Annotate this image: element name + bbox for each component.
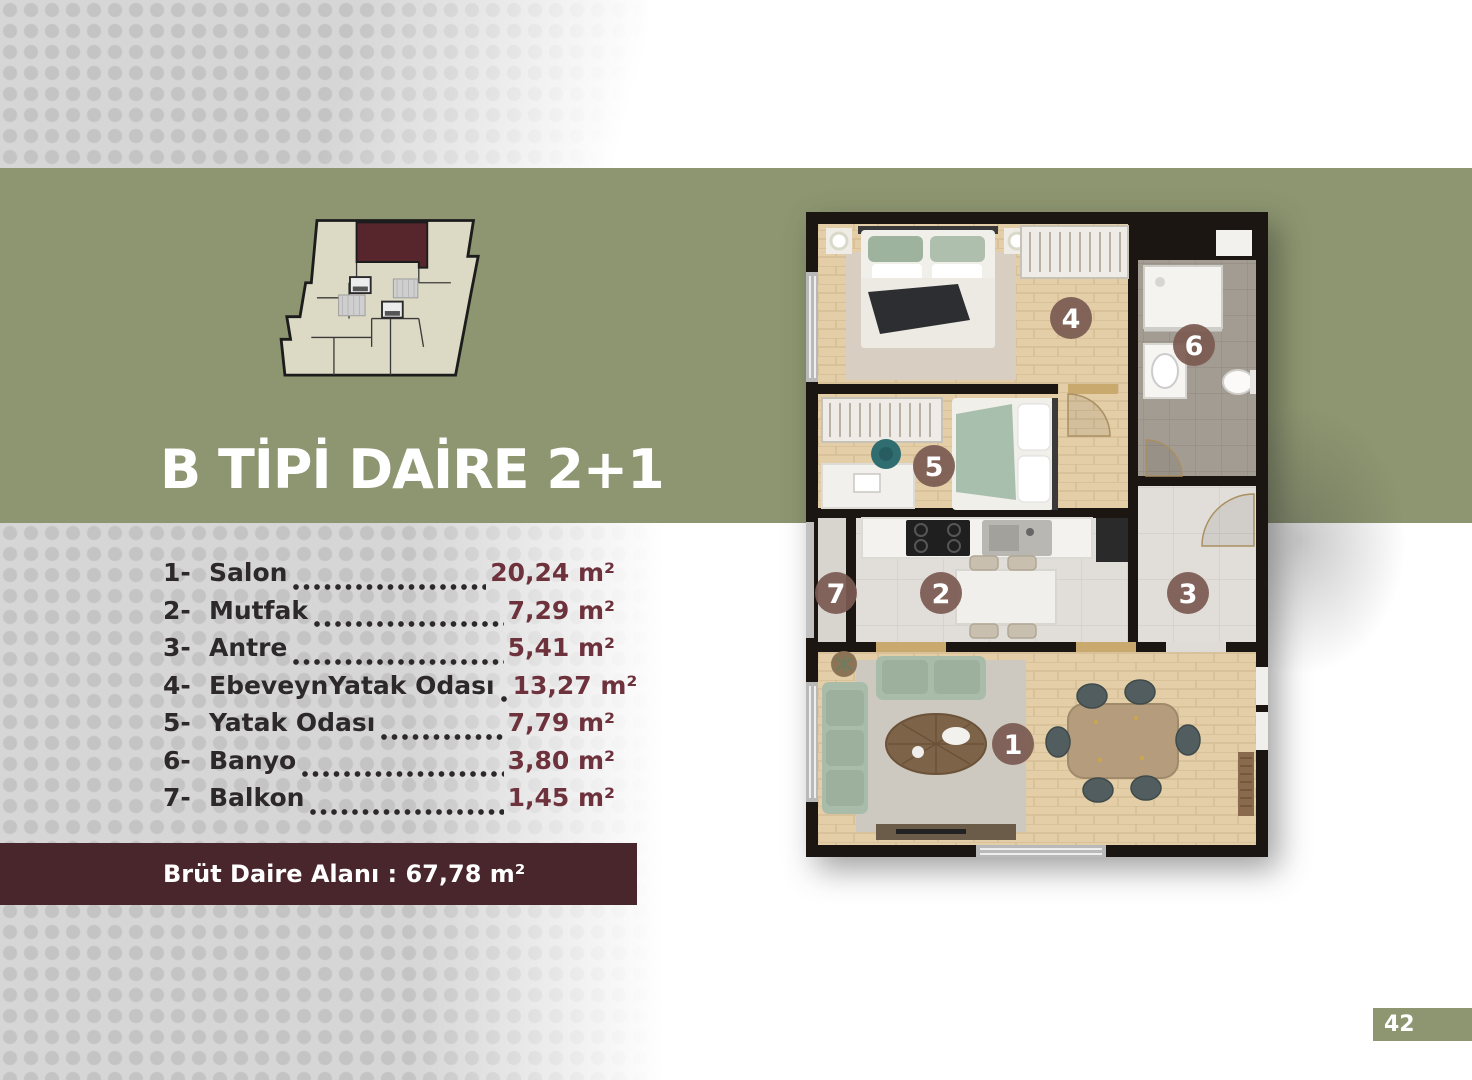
dot-leader	[308, 807, 503, 817]
dot-leader	[379, 732, 503, 742]
list-item: 1- Salon 20,24 m²	[163, 558, 615, 596]
svg-text:6: 6	[1185, 331, 1204, 362]
dot-leader	[291, 582, 486, 592]
list-item: 7- Balkon 1,45 m²	[163, 783, 615, 821]
svg-text:4: 4	[1062, 304, 1081, 335]
dot-leader	[300, 769, 503, 779]
room-name: Yatak Odası	[209, 708, 375, 737]
list-item: 3- Antre 5,41 m²	[163, 633, 615, 671]
svg-text:1: 1	[1004, 730, 1023, 761]
gross-area-banner: Brüt Daire Alanı : 67,78 m²	[0, 843, 637, 905]
room-marker-4: 4	[1050, 297, 1092, 339]
room-marker-7: 7	[815, 572, 857, 614]
room-area: 3,80 m²	[508, 746, 615, 775]
room-marker-6: 6	[1173, 324, 1215, 366]
bathroom-niche	[1216, 230, 1252, 256]
room-name: Mutfak	[209, 596, 308, 625]
room-marker-2: 2	[920, 572, 962, 614]
room-marker-5: 5	[913, 445, 955, 487]
page-title: B TİPİ DAİRE 2+1	[160, 438, 860, 501]
room-index: 6-	[163, 746, 209, 775]
room-index: 5-	[163, 708, 209, 737]
list-item: 6- Banyo 3,80 m²	[163, 746, 615, 784]
room-index: 3-	[163, 633, 209, 662]
halftone-pattern-top	[0, 0, 648, 168]
room-index: 4-	[163, 671, 209, 700]
dot-leader	[291, 657, 503, 667]
dot-leader	[499, 694, 509, 704]
room-name: EbeveynYatak Odası	[209, 671, 495, 700]
room-name: Balkon	[209, 783, 304, 812]
room-marker-3: 3	[1167, 572, 1209, 614]
list-item: 4- EbeveynYatak Odası 13,27 m²	[163, 671, 615, 709]
room-name: Antre	[209, 633, 287, 662]
svg-text:7: 7	[827, 579, 846, 610]
brochure-page: B TİPİ DAİRE 2+1 1- Salon 20,24 m² 2- Mu…	[0, 0, 1472, 1080]
list-item: 5- Yatak Odası 7,79 m²	[163, 708, 615, 746]
dot-leader	[312, 619, 504, 629]
svg-text:2: 2	[932, 579, 951, 610]
building-key-plan	[253, 196, 528, 394]
room-index: 1-	[163, 558, 209, 587]
room-marker-1: 1	[992, 723, 1034, 765]
svg-text:3: 3	[1179, 579, 1198, 610]
room-index: 2-	[163, 596, 209, 625]
room-area: 5,41 m²	[508, 633, 615, 662]
room-index: 7-	[163, 783, 209, 812]
room-area-list: 1- Salon 20,24 m² 2- Mutfak 7,29 m² 3- A…	[163, 558, 615, 821]
room-area: 13,27 m²	[513, 671, 638, 700]
svg-text:5: 5	[925, 452, 944, 483]
keyplan-highlighted-unit	[357, 222, 428, 267]
room-area: 7,79 m²	[508, 708, 615, 737]
gross-area-text: Brüt Daire Alanı : 67,78 m²	[163, 860, 525, 888]
page-number-badge: 42	[1373, 1008, 1472, 1041]
room-name: Banyo	[209, 746, 296, 775]
room-name: Salon	[209, 558, 287, 587]
room-area: 1,45 m²	[508, 783, 615, 812]
room-area: 20,24 m²	[490, 558, 615, 587]
floor-plan: 4 6 5 7 2 3 1	[806, 212, 1268, 857]
room-area: 7,29 m²	[508, 596, 615, 625]
page-number: 42	[1384, 1012, 1415, 1037]
list-item: 2- Mutfak 7,29 m²	[163, 596, 615, 634]
